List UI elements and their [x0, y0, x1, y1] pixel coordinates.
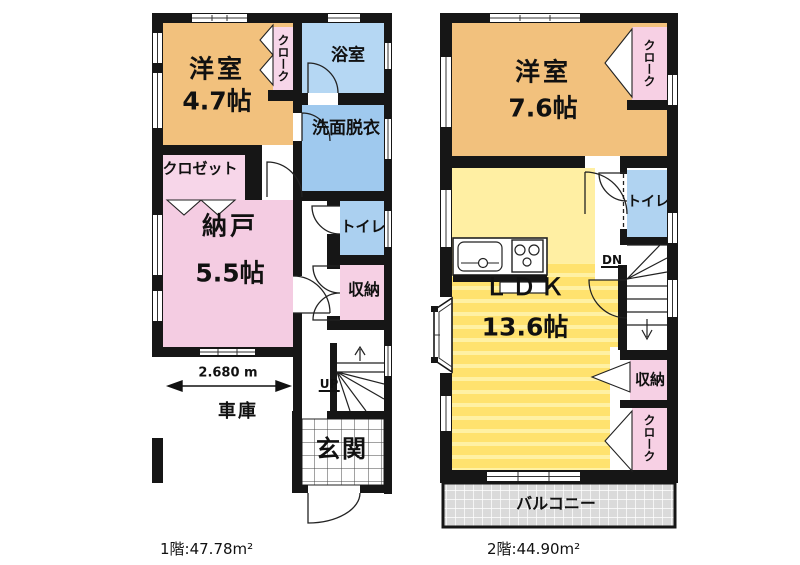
f1-dimension-label: 2.680 m: [198, 367, 257, 380]
door-arc: [293, 276, 330, 313]
door-arc: [313, 266, 340, 320]
f1-entrance-label: 玄関: [316, 437, 368, 461]
f2-ldk-size: 13.6帖: [482, 315, 569, 340]
down-arrow-icon: [642, 319, 652, 339]
f1-toilet-label: トイレ: [340, 220, 385, 235]
f2-western-room-label: 洋室: [515, 60, 571, 85]
f1-bathroom-label: 浴室: [331, 48, 365, 65]
f2-dn-label: DN: [601, 254, 623, 268]
floor2-drawing: [428, 13, 678, 528]
f1-western-room-label: 洋室: [189, 57, 245, 82]
f1-cloak-label: クローク: [277, 34, 289, 82]
f2-toilet-label: トイレ: [627, 195, 669, 209]
f2-western-room-size: 7.6帖: [508, 96, 577, 121]
f2-cloak-top-label: クローク: [643, 39, 655, 87]
up-arrow-icon: [355, 347, 365, 361]
floorplan-canvas: 洋室 4.7帖 クローク 浴室 洗面脱衣 クロゼット 納戸 5.5帖 トイレ 収…: [0, 0, 800, 565]
f1-washroom-label: 洗面脱衣: [312, 121, 380, 138]
floor1-stairs: [337, 347, 384, 411]
f1-storage-room-size: 5.5帖: [195, 261, 264, 286]
f2-ldk-label: ＬＤＫ: [484, 275, 568, 299]
faucet-icon: [479, 259, 488, 268]
floor1-title: 1階:47.78m²: [160, 538, 253, 559]
floor2-stairs: [627, 245, 667, 339]
stove-icon: [512, 240, 543, 272]
f1-storage-label: 収納: [348, 282, 380, 298]
f1-closet-label: クロゼット: [162, 162, 237, 177]
f1-up-label: UP: [319, 378, 340, 392]
f1-garage-label: 車庫: [218, 403, 258, 421]
door-arc: [312, 206, 340, 234]
f1-western-room-size: 4.7帖: [182, 89, 251, 114]
f2-cloak-bottom-label: クローク: [643, 414, 655, 462]
bay-window: [431, 298, 452, 372]
floor2-title: 2階:44.90m²: [487, 538, 580, 559]
f2-storage-label: 収納: [635, 373, 665, 388]
f2-balcony-label: バルコニー: [516, 496, 596, 512]
f1-storage-room-label: 納戸: [202, 214, 258, 239]
f1-dimension-arrow: [168, 381, 290, 391]
entrance-door-arc: [308, 493, 360, 523]
